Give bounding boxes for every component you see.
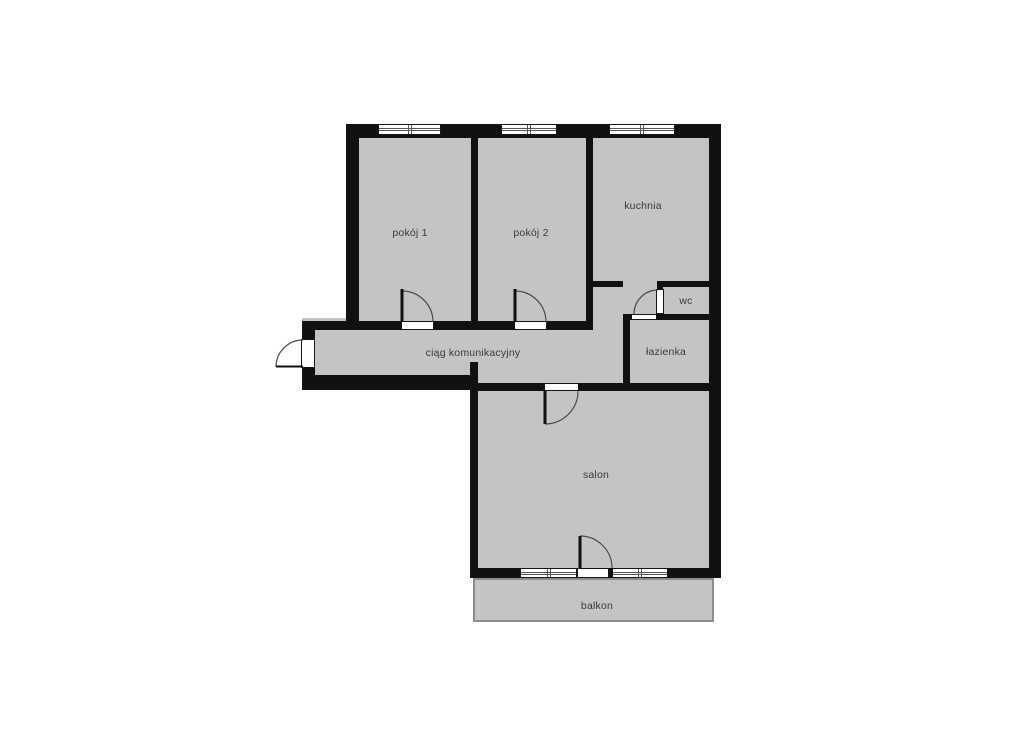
wall-exterior-left (346, 124, 359, 322)
window-mullion (408, 125, 412, 134)
door-threshold-pokoj-1 (401, 321, 434, 330)
window-mullion (547, 569, 551, 577)
wall-exterior-right (709, 124, 721, 578)
floor-wc-bathroom (623, 281, 721, 390)
wall-corridor-top (302, 321, 593, 330)
floor-plan: pokój 1 pokój 2 kuchnia wc łazienka ciąg… (0, 0, 1024, 750)
window-salon-left (520, 568, 577, 578)
wall-kuchnia-stub (586, 281, 623, 287)
window-mullion (640, 125, 644, 134)
door-threshold-pokoj-2 (514, 321, 547, 330)
room-label-ciag-komunikacyjny: ciąg komunikacyjny (426, 347, 521, 359)
room-label-salon: salon (583, 469, 609, 481)
wall-corridor-bottom (302, 375, 477, 390)
wall-pokoj2-kuchnia (586, 138, 593, 330)
room-label-wc: wc (679, 295, 692, 307)
wall-wc-top (657, 281, 709, 287)
door-threshold-lazienka (631, 314, 657, 320)
window-mullion (527, 125, 531, 134)
room-label-pokoj-1: pokój 1 (392, 227, 427, 239)
door-threshold-salon (544, 383, 579, 391)
wall-pokoj1-pokoj2 (471, 138, 478, 330)
wc-door-leaf (656, 289, 664, 314)
room-label-balkon: balkon (581, 600, 613, 612)
window-kuchnia (609, 124, 675, 135)
wall-salon-top (470, 383, 721, 391)
window-salon-right (612, 568, 668, 578)
window-pokoj-2 (501, 124, 557, 135)
window-pokoj-1 (378, 124, 441, 135)
wall-lazienka-left (623, 320, 630, 390)
wall-salon-left (470, 362, 478, 578)
door-threshold-balkon (577, 568, 609, 578)
room-label-pokoj-2: pokój 2 (513, 227, 548, 239)
room-label-kuchnia: kuchnia (624, 200, 662, 212)
entrance-door-opening (301, 339, 315, 368)
room-label-lazienka: łazienka (646, 346, 686, 358)
window-mullion (638, 569, 642, 577)
door-arc-entrance (276, 340, 303, 367)
